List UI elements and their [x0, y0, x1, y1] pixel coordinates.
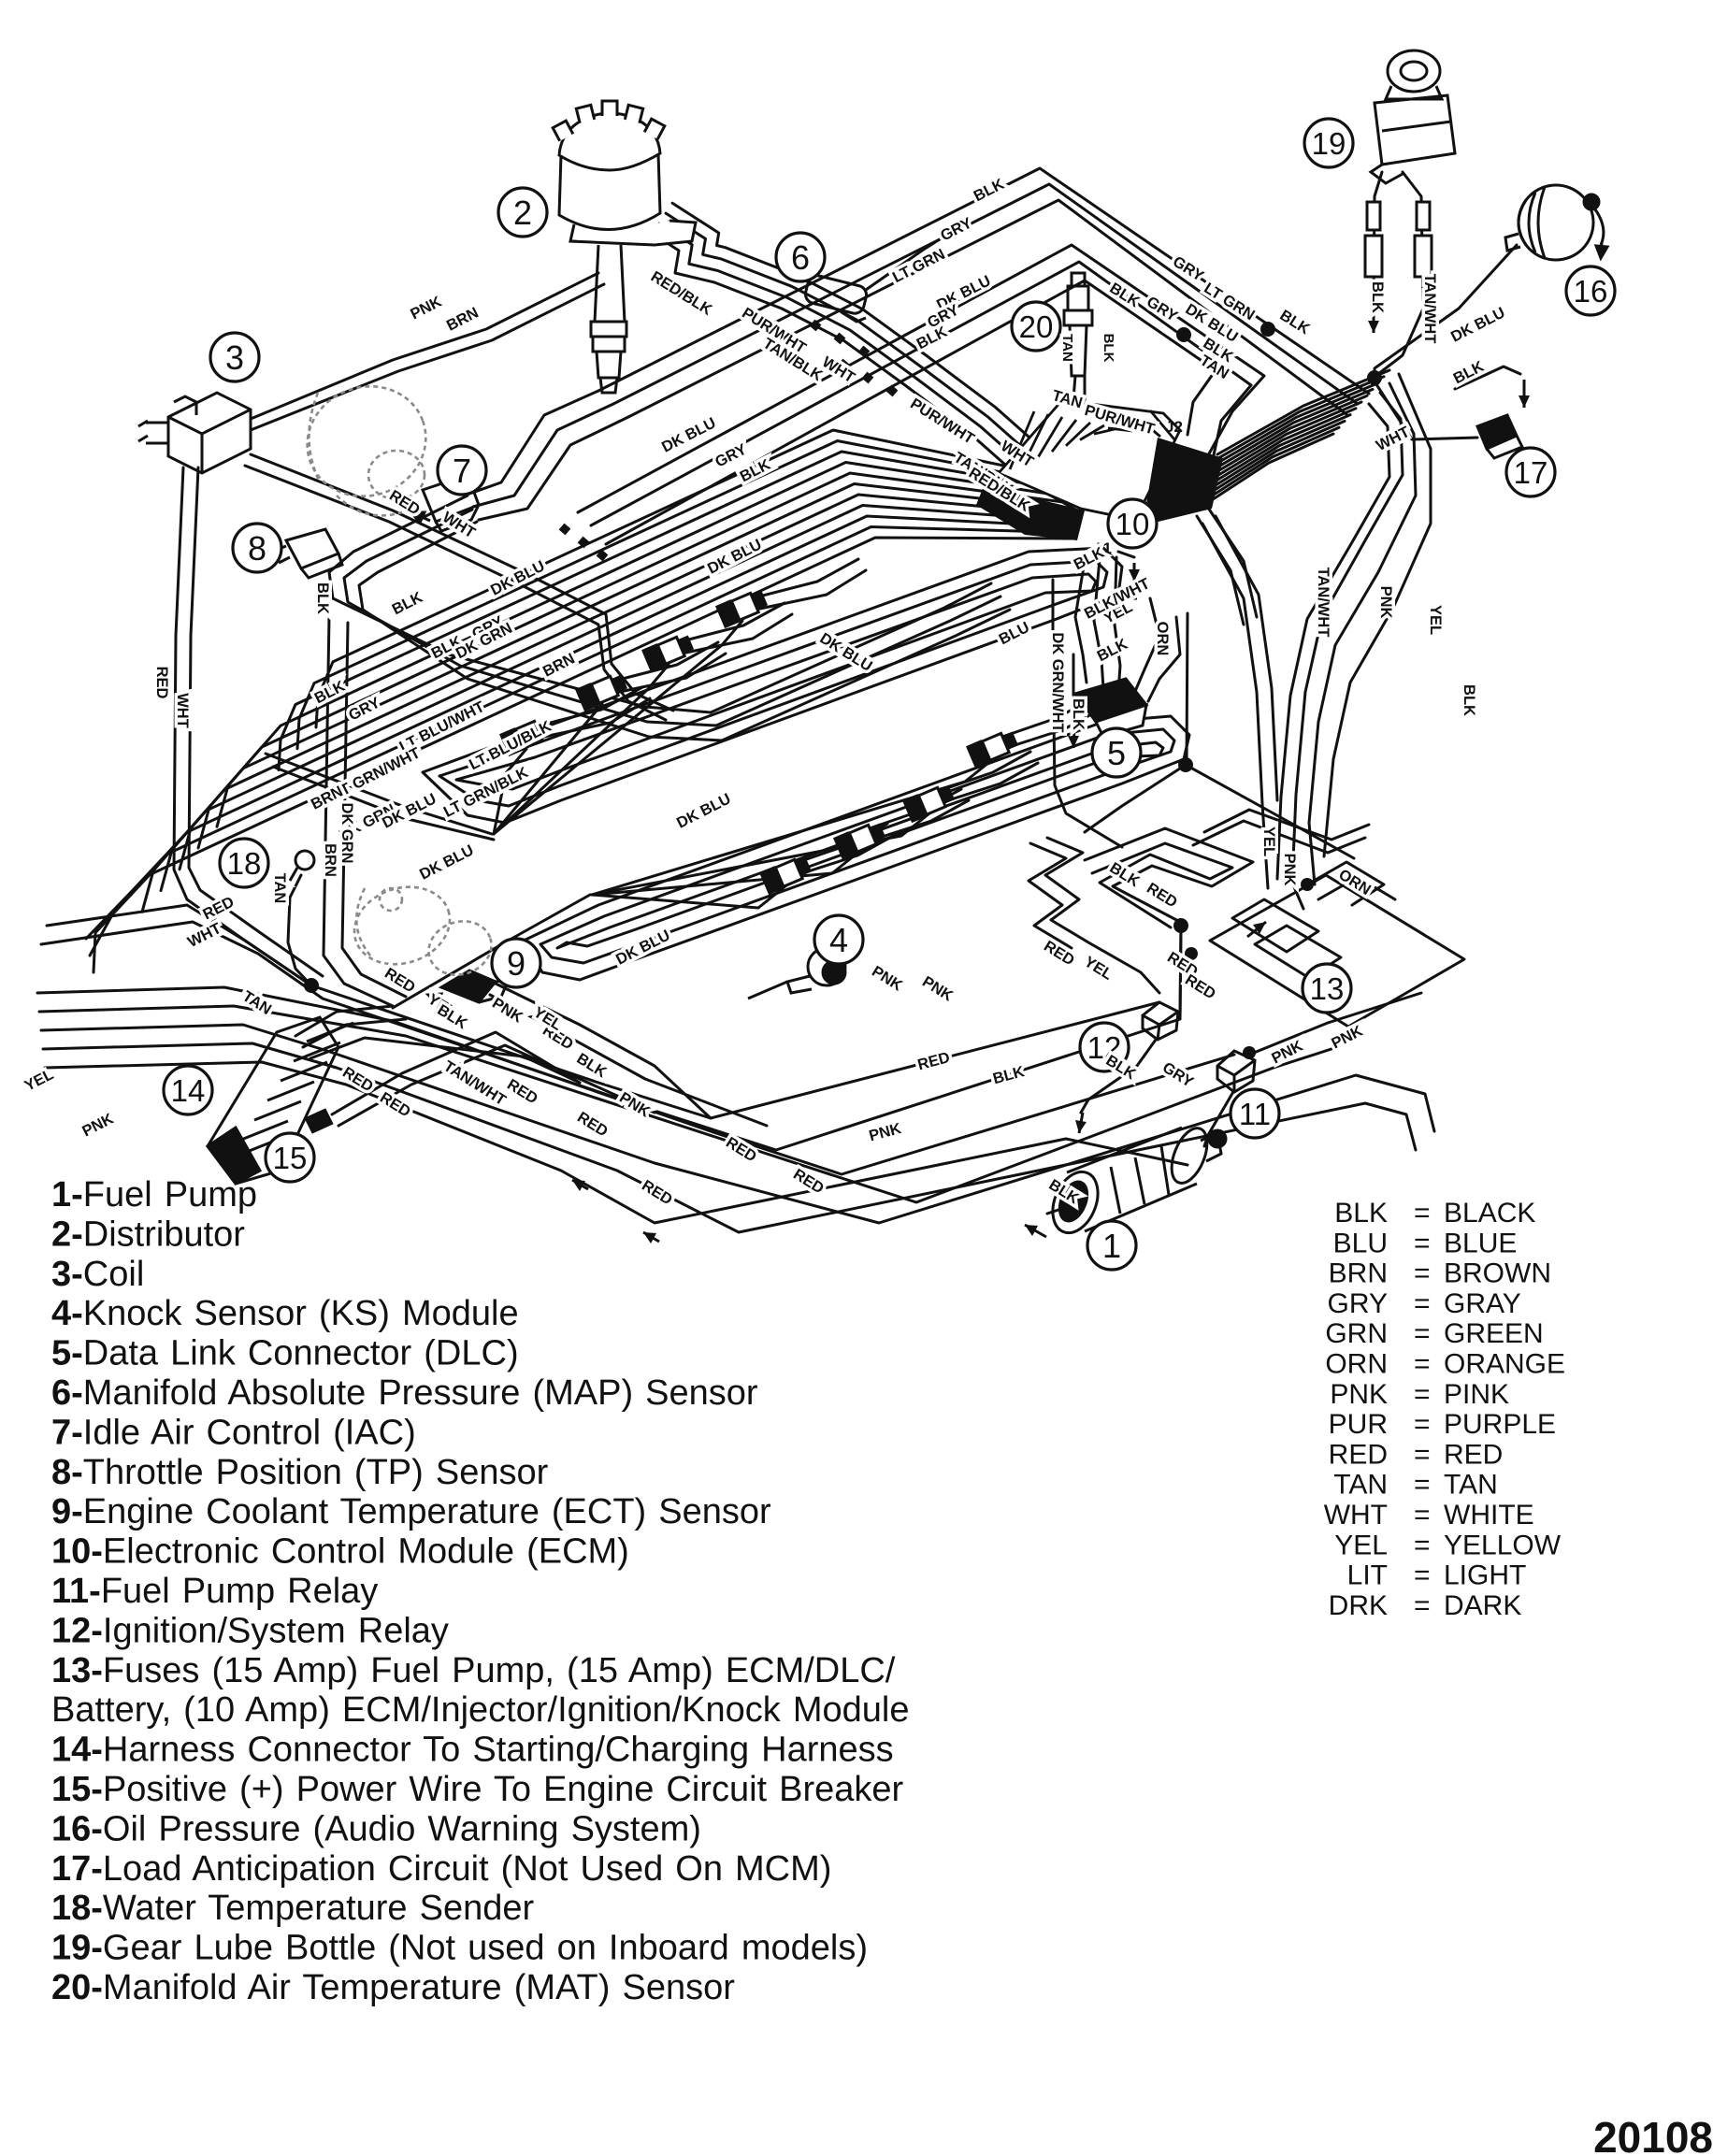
svg-text:2: 2 [513, 194, 532, 232]
svg-text:13: 13 [1310, 971, 1345, 1006]
svg-text:WHITE: WHITE [1444, 1500, 1534, 1531]
svg-text:PNK: PNK [1377, 586, 1394, 619]
svg-text:TAN: TAN [271, 873, 288, 904]
svg-text:=: = [1414, 1288, 1431, 1319]
svg-text:13-Fuses (15 Amp) Fuel Pump, (: 13-Fuses (15 Amp) Fuel Pump, (15 Amp) EC… [51, 1651, 896, 1690]
svg-text:=: = [1414, 1470, 1431, 1501]
svg-text:TAN: TAN [1333, 1470, 1388, 1501]
svg-text:=: = [1414, 1228, 1431, 1258]
svg-text:LIGHT: LIGHT [1444, 1560, 1526, 1591]
svg-text:7: 7 [453, 452, 471, 490]
svg-text:WHT: WHT [1324, 1500, 1388, 1531]
svg-text:TAN: TAN [1444, 1470, 1498, 1501]
svg-text:7-Idle Air Control (IAC): 7-Idle Air Control (IAC) [51, 1413, 416, 1452]
svg-text:14-Harness Connector To Starti: 14-Harness Connector To Starting/Chargin… [51, 1731, 894, 1770]
svg-text:PINK: PINK [1444, 1379, 1509, 1410]
svg-text:GRY: GRY [1328, 1288, 1388, 1319]
svg-text:15-Positive (+) Power Wire To: 15-Positive (+) Power Wire To Engine Cir… [51, 1770, 904, 1809]
svg-text:BLK: BLK [1369, 281, 1386, 313]
svg-text:ORN: ORN [1325, 1349, 1388, 1380]
svg-text:=: = [1414, 1409, 1431, 1440]
svg-text:10-Electronic Control Module (: 10-Electronic Control Module (ECM) [51, 1532, 629, 1572]
svg-text:17-Load Anticipation Circuit (: 17-Load Anticipation Circuit (Not Used O… [51, 1849, 831, 1889]
svg-text:PNK: PNK [1330, 1379, 1388, 1410]
svg-text:BLK: BLK [1070, 698, 1087, 730]
svg-text:2-Distributor: 2-Distributor [51, 1215, 245, 1254]
svg-text:DARK: DARK [1444, 1590, 1521, 1621]
svg-text:YEL: YEL [1334, 1530, 1388, 1560]
svg-text:1-Fuel Pump: 1-Fuel Pump [51, 1175, 257, 1215]
svg-text:ORANGE: ORANGE [1444, 1349, 1565, 1380]
svg-text:DK GRN: DK GRN [338, 802, 355, 863]
svg-text:RED: RED [1329, 1439, 1388, 1470]
svg-text:BLK: BLK [314, 582, 331, 614]
svg-text:5-Data Link Connector (DLC): 5-Data Link Connector (DLC) [51, 1334, 519, 1373]
svg-text:BLK: BLK [1461, 684, 1477, 716]
svg-text:8: 8 [248, 529, 266, 568]
svg-text:8-Throttle Position (TP) Senso: 8-Throttle Position (TP) Sensor [51, 1453, 549, 1492]
svg-text:YEL: YEL [1260, 826, 1277, 856]
svg-text:11-Fuel Pump Relay: 11-Fuel Pump Relay [51, 1572, 378, 1611]
svg-text:TAN: TAN [1059, 334, 1075, 362]
svg-text:TAN/WHT: TAN/WHT [1421, 274, 1438, 344]
svg-text:RED: RED [153, 667, 170, 699]
svg-text:GRN: GRN [1325, 1318, 1388, 1349]
svg-text:=: = [1414, 1198, 1431, 1229]
svg-text:9: 9 [507, 944, 525, 983]
svg-text:=: = [1414, 1560, 1431, 1591]
svg-text:3-Coil: 3-Coil [51, 1255, 144, 1294]
svg-text:BLUE: BLUE [1444, 1228, 1517, 1258]
svg-text:BRN: BRN [1329, 1258, 1388, 1289]
svg-text:20: 20 [1019, 309, 1054, 344]
svg-text:WHT: WHT [174, 693, 191, 728]
svg-text:1: 1 [1102, 1227, 1121, 1265]
svg-text:18-Water Temperature Sender: 18-Water Temperature Sender [51, 1889, 534, 1928]
svg-text:=: = [1414, 1439, 1431, 1470]
svg-text:=: = [1414, 1349, 1431, 1380]
svg-text:=: = [1414, 1530, 1431, 1560]
svg-text:17: 17 [1514, 455, 1548, 490]
svg-text:16: 16 [1574, 274, 1608, 309]
svg-text:Battery, (10 Amp) ECM/Injector: Battery, (10 Amp) ECM/Injector/Ignition/… [51, 1690, 909, 1730]
svg-text:14: 14 [171, 1073, 206, 1108]
svg-text:LIT: LIT [1347, 1560, 1388, 1591]
svg-text:YELLOW: YELLOW [1444, 1530, 1562, 1560]
svg-text:19: 19 [1312, 126, 1346, 161]
svg-text:20-Manifold Air Temperature (M: 20-Manifold Air Temperature (MAT) Sensor [51, 1968, 735, 2007]
svg-text:=: = [1414, 1258, 1431, 1289]
svg-text:PNK: PNK [1281, 854, 1298, 886]
svg-text:RED: RED [1444, 1439, 1503, 1470]
svg-text:=: = [1414, 1318, 1431, 1349]
svg-text:BLK: BLK [1334, 1198, 1388, 1229]
svg-text:11: 11 [1239, 1097, 1271, 1131]
svg-text:PURPLE: PURPLE [1444, 1409, 1556, 1440]
svg-text:4: 4 [829, 921, 848, 959]
svg-text:16-Oil Pressure (Audio Warning: 16-Oil Pressure (Audio Warning System) [51, 1809, 701, 1848]
svg-text:19-Gear Lube Bottle (Not used: 19-Gear Lube Bottle (Not used on Inboard… [51, 1929, 868, 1968]
svg-text:9-Engine Coolant Temperature (: 9-Engine Coolant Temperature (ECT) Senso… [51, 1492, 771, 1531]
svg-text:DRK: DRK [1329, 1590, 1388, 1621]
svg-text:GREEN: GREEN [1444, 1318, 1544, 1349]
svg-text:GRAY: GRAY [1444, 1288, 1521, 1319]
svg-text:DK GRN/WHT: DK GRN/WHT [1049, 632, 1066, 732]
svg-text:20108: 20108 [1593, 2113, 1713, 2156]
svg-text:ORN: ORN [1154, 622, 1171, 656]
svg-text:BLK: BLK [1101, 334, 1116, 363]
svg-text:12-Ignition/System Relay: 12-Ignition/System Relay [51, 1611, 449, 1650]
svg-text:=: = [1414, 1590, 1431, 1621]
svg-text:BLU: BLU [1333, 1228, 1388, 1258]
svg-text:10: 10 [1116, 507, 1150, 541]
svg-text:=: = [1414, 1500, 1431, 1531]
svg-text:BRN: BRN [322, 843, 338, 877]
svg-text:5: 5 [1107, 734, 1126, 772]
svg-text:4-Knock Sensor (KS) Module: 4-Knock Sensor (KS) Module [51, 1294, 519, 1333]
svg-text:BROWN: BROWN [1444, 1258, 1551, 1289]
svg-text:6: 6 [791, 238, 810, 277]
svg-text:6-Manifold Absolute Pressure (: 6-Manifold Absolute Pressure (MAP) Senso… [51, 1373, 758, 1413]
svg-text:3: 3 [225, 338, 244, 377]
svg-text:18: 18 [227, 846, 262, 881]
svg-text:J2: J2 [1165, 418, 1183, 436]
svg-text:YEL: YEL [1427, 605, 1444, 635]
svg-text:BLACK: BLACK [1444, 1198, 1535, 1229]
svg-text:=: = [1414, 1379, 1431, 1410]
svg-text:TAN/WHT: TAN/WHT [1315, 568, 1332, 638]
svg-text:PUR: PUR [1329, 1409, 1388, 1440]
svg-text:15: 15 [273, 1141, 308, 1175]
